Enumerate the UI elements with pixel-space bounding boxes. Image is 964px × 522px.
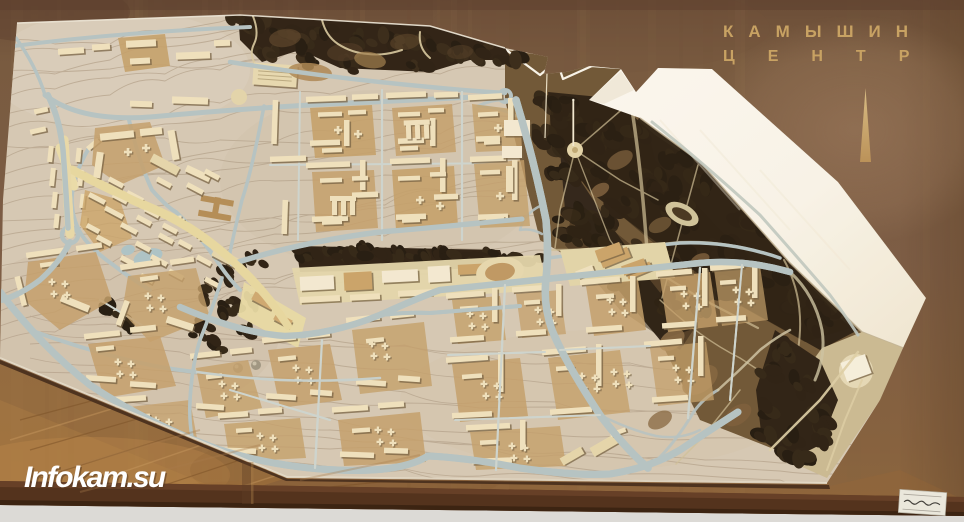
- svg-text:КАМЫШИН: КАМЫШИН: [723, 22, 923, 41]
- svg-text:Infokam.su: Infokam.su: [24, 461, 166, 494]
- svg-text:ЦЕНТР: ЦЕНТР: [723, 48, 942, 65]
